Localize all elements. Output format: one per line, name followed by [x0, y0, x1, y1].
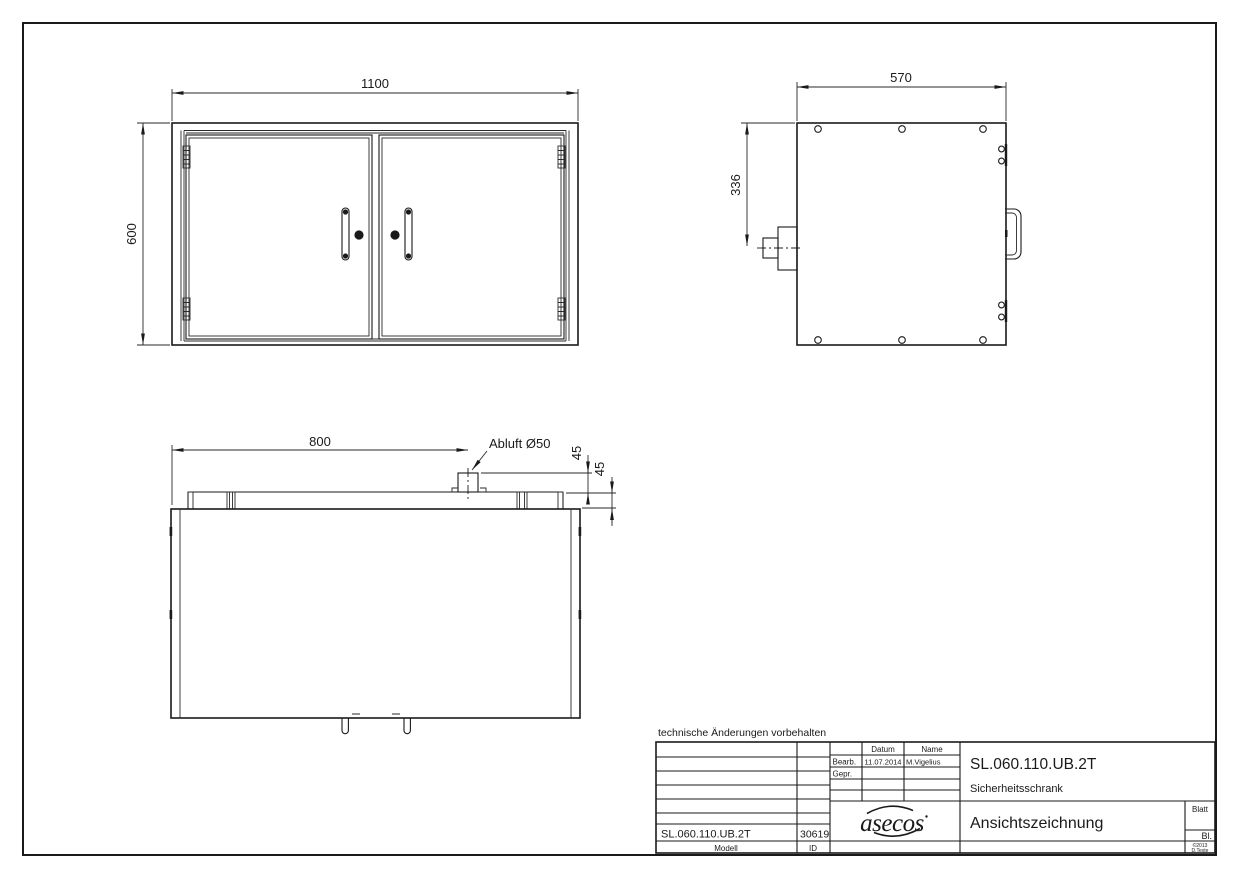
technical-drawing-svg: 1100 600 — [0, 0, 1240, 877]
side-handle — [1005, 209, 1021, 259]
exhaust-spigot-top — [452, 468, 486, 501]
top-view: 800 Abluft Ø50 — [170, 434, 616, 734]
duct-leader-line — [472, 451, 487, 470]
view-type-label: Ansichtszeichnung — [970, 815, 1103, 832]
right-door — [379, 135, 564, 339]
left-door-lock — [354, 230, 363, 239]
right-door-handle — [405, 208, 412, 260]
front-width-dim: 1100 — [361, 76, 389, 91]
top-view-wall-marks — [170, 527, 582, 619]
footer-model-label: Modell — [714, 844, 738, 853]
side-view: 570 336 — [728, 70, 1021, 345]
hinge-marks — [183, 146, 565, 320]
duct-position-dim: 800 — [309, 434, 331, 449]
gepr-label: Gepr. — [833, 770, 853, 779]
spigot-height-dim: 45 — [569, 446, 584, 460]
model-number: SL.060.110.UB.2T — [970, 756, 1097, 773]
drawing-sheet: 1100 600 — [0, 0, 1240, 877]
front-view: 1100 600 — [124, 76, 578, 345]
rear-rail — [188, 492, 563, 509]
cabinet-top-outline — [171, 509, 580, 718]
left-door — [186, 135, 372, 339]
bl-label: Bl. — [1201, 831, 1212, 841]
footer-id-label: ID — [809, 844, 817, 853]
name-header: Name — [921, 745, 943, 754]
footer-model-value: SL.060.110.UB.2T — [661, 829, 751, 841]
asecos-trademark-dot — [925, 815, 927, 817]
duct-label: Abluft Ø50 — [489, 436, 550, 451]
duct-height-dim: 336 — [728, 174, 743, 196]
left-door-handle — [342, 208, 349, 260]
footer-id-value: 30619 — [800, 829, 829, 841]
bearb-label: Bearb. — [833, 758, 857, 767]
side-depth-dim: 570 — [890, 70, 912, 85]
front-height-dim: 600 — [124, 223, 139, 245]
rail-height-dim-group: 45 — [582, 462, 616, 526]
rail-height-dim: 45 — [592, 462, 607, 476]
asecos-logo-text: asecos — [860, 810, 924, 837]
screw-holes — [815, 126, 1005, 344]
cabinet-side-outline — [797, 123, 1006, 345]
revision-note: technische Änderungen vorbehalten — [658, 727, 826, 739]
title-block: technische Änderungen vorbehalten Datum … — [656, 727, 1215, 854]
version-line2: D.Texte — [1192, 848, 1209, 854]
page-border — [23, 23, 1216, 855]
datum-header: Datum — [871, 745, 895, 754]
bearb-name: M.Vigelius — [906, 758, 941, 767]
cabinet-front-outline — [172, 123, 578, 345]
blatt-label: Blatt — [1192, 805, 1209, 814]
exhaust-spigot-side — [757, 227, 803, 270]
asecos-logo: asecos — [860, 806, 928, 837]
floor-pins — [342, 718, 410, 734]
right-door-lock — [390, 230, 399, 239]
bearb-date: 11.07.2014 — [865, 758, 902, 767]
cabinet-type: Sicherheitsschrank — [970, 783, 1063, 795]
